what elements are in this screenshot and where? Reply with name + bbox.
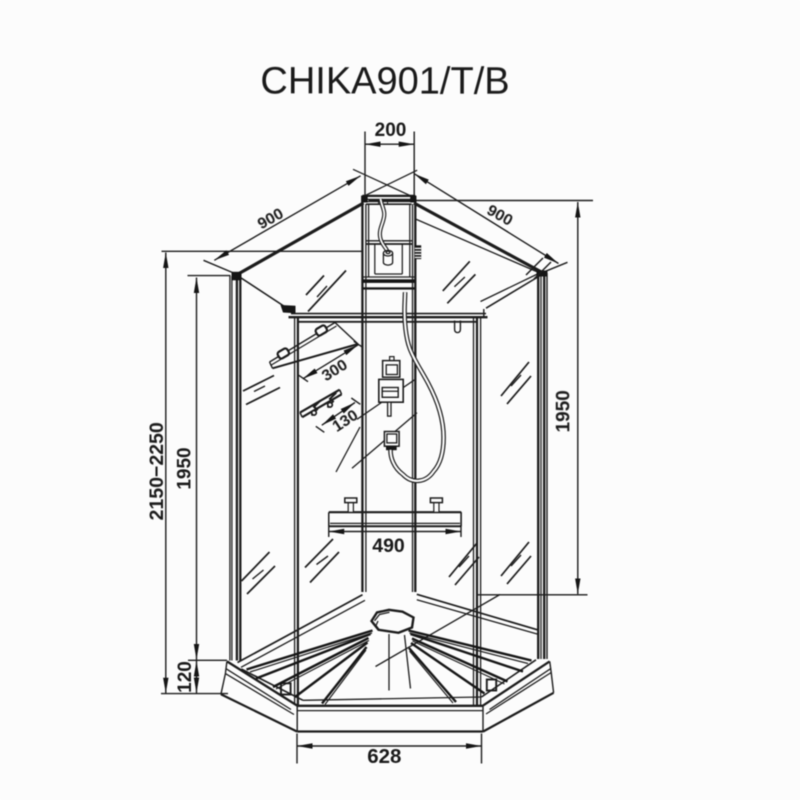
svg-text:490: 490 xyxy=(372,535,405,557)
svg-text:628: 628 xyxy=(367,745,401,768)
svg-text:200: 200 xyxy=(375,120,407,141)
svg-text:CHIKA901/T/B: CHIKA901/T/B xyxy=(260,60,509,102)
svg-text:1950: 1950 xyxy=(174,447,195,489)
svg-text:2150−2250: 2150−2250 xyxy=(146,422,168,520)
svg-text:120: 120 xyxy=(175,661,196,693)
svg-text:1950: 1950 xyxy=(553,390,574,432)
